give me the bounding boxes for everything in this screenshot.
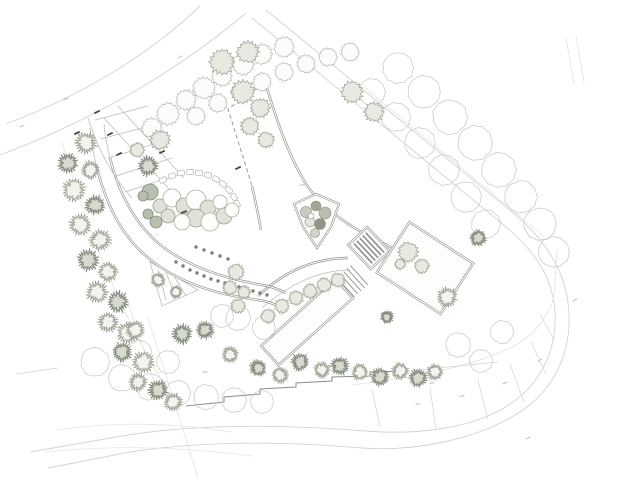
hedge-dot — [209, 277, 212, 280]
tree-symbol-spiky — [352, 363, 368, 380]
tree-symbol-spiky — [97, 312, 119, 332]
tree-symbol-fluffy — [274, 37, 295, 58]
tree-symbol-fluffyT — [209, 49, 235, 75]
tree-symbol-canopy — [408, 75, 440, 108]
tree-symbol-spiky — [314, 361, 331, 378]
west-tick-line — [16, 368, 58, 374]
tree-symbol-spiky — [164, 393, 183, 411]
hedge-dot — [226, 257, 229, 260]
tree-symbol-canopy — [539, 237, 570, 268]
tree-symbol-spikyDark — [147, 380, 168, 400]
perimeter-road-outer — [48, 10, 569, 468]
drive-outer-edge-gap — [96, 164, 278, 306]
annotation-tick-dark — [235, 166, 241, 170]
drive-outer-edge — [96, 164, 278, 306]
wedge-shrub — [308, 213, 314, 219]
tree-symbol-spiky — [86, 281, 109, 303]
annotation-tick-dark — [94, 110, 100, 114]
tree-symbol-canopy — [405, 127, 435, 158]
annotation-tick-dark — [107, 132, 113, 136]
hedge-dot — [188, 268, 191, 271]
tree-symbol-spikyDark — [330, 357, 349, 375]
annotation-tick-faint — [573, 298, 577, 302]
stepping-stone — [195, 170, 202, 176]
tree-symbol-fluffyT — [250, 99, 270, 119]
tree-symbol-canopy — [446, 333, 470, 358]
tree-symbol-canopy — [157, 351, 180, 374]
annotation-tick-faint — [19, 125, 24, 127]
tree-symbol-canopy — [458, 125, 492, 160]
tree-symbol-fluffy — [341, 43, 360, 62]
tree-symbol-spikyDark — [380, 311, 393, 323]
hedge-dot — [218, 254, 221, 257]
tree-symbol-canopy — [433, 100, 468, 135]
annotation-tick-faint — [526, 436, 531, 439]
tree-symbol-canopy — [491, 320, 514, 344]
annotation-tick-faint — [178, 55, 183, 58]
shrub-symbol — [161, 209, 175, 223]
site-plan-sheet — [0, 0, 640, 480]
shrub-symbol — [225, 203, 239, 217]
tree-symbol-canopy — [470, 350, 493, 373]
tree-symbol-fluffyT — [231, 299, 247, 314]
tree-symbol-canopy — [482, 152, 517, 187]
shrub-symbol — [143, 209, 153, 219]
wedge-planter — [294, 194, 339, 248]
stepping-stone — [212, 175, 220, 182]
tree-symbol-spikyDark — [409, 369, 427, 388]
annotation-tick-faint — [429, 382, 434, 383]
tree-symbol-fluffy — [275, 63, 294, 82]
hedge-dot — [251, 289, 254, 292]
tree-symbol-fluffyT — [331, 273, 346, 287]
annotation-tick-faint — [415, 403, 420, 405]
garden-shrubs — [138, 184, 239, 231]
hedge-dot — [258, 291, 261, 294]
annotation-tick-faint — [459, 395, 464, 397]
tree-symbol-spikyDark — [470, 229, 487, 246]
tree-symbol-fluffyT — [275, 299, 290, 314]
linework-layer — [0, 6, 584, 478]
hedge-dot — [202, 274, 205, 277]
tree-symbol-fluffy — [176, 90, 197, 111]
tree-symbol-spikyDark — [291, 353, 309, 371]
hedge-dot — [265, 293, 268, 296]
tree-symbol-spikyDark — [77, 249, 99, 272]
site-plan-drawing — [0, 0, 640, 480]
hedge-dot — [181, 264, 184, 267]
tree-symbol-fluffy — [253, 72, 271, 91]
plaza-left-edge-gap — [252, 186, 261, 230]
tree-symbol-fluffyT — [231, 79, 255, 104]
hedge-dot — [194, 245, 197, 248]
tree-symbol-spiky — [63, 178, 86, 202]
stepping-stone — [186, 169, 193, 174]
tree-symbol-spikyDark — [196, 321, 215, 340]
wedge-shrub — [311, 201, 321, 211]
tree-symbol-spiky — [222, 346, 238, 362]
tree-symbol-spikyDark — [58, 153, 78, 173]
tree-symbol-canopy — [505, 181, 538, 213]
tree-symbol-fluffyT — [260, 309, 275, 324]
annotation-tick-faint — [202, 371, 207, 372]
tree-symbol-canopy — [194, 384, 219, 409]
terrain-contour-2 — [46, 448, 252, 456]
tree-symbol-canopy — [81, 347, 110, 376]
tree-symbol-fluffyT — [240, 117, 258, 135]
tree-symbol-fluffyT — [130, 142, 145, 157]
tree-symbol-fluffyT — [228, 264, 245, 281]
tree-symbol-spikyDark — [249, 360, 265, 377]
stepping-stone — [219, 180, 228, 188]
stepping-stone — [204, 172, 212, 179]
drive-upper-stub — [90, 124, 110, 164]
tree-symbol-spiky — [98, 262, 119, 282]
tree-symbol-spiky — [88, 229, 111, 251]
hedge-dot — [202, 248, 205, 251]
shrub-symbol — [213, 195, 227, 209]
tree-symbol-spikyDark — [113, 342, 132, 362]
stepping-stone — [168, 173, 176, 180]
tree-symbol-spikyDark — [108, 290, 128, 313]
tree-symbol-fluffy — [157, 102, 180, 126]
tree-symbol-spiky — [69, 214, 91, 236]
tree-symbol-fluffy — [319, 48, 338, 67]
trees-fluffyT — [130, 40, 430, 324]
wedge-shrub — [315, 219, 326, 230]
stepping-stone — [177, 170, 185, 176]
tree-symbol-fluffyT — [289, 290, 304, 305]
shrub-symbol — [138, 191, 148, 201]
ne-drive-stub — [566, 36, 584, 84]
tree-symbol-spiky — [81, 160, 99, 180]
tree-symbol-fluffyT — [258, 132, 275, 149]
annotation-tick-faint — [502, 382, 507, 385]
annotation-tick-faint — [299, 184, 304, 186]
wedge-shrub — [319, 207, 331, 219]
tree-symbol-canopy — [211, 304, 234, 328]
hedge-dots — [174, 245, 268, 296]
tree-symbol-fluffyT — [341, 81, 364, 103]
hedge-dot — [210, 251, 213, 254]
shrub-symbol — [174, 214, 190, 230]
tree-symbol-spiky — [427, 363, 443, 380]
tree-symbol-spiky — [272, 367, 289, 384]
tree-symbol-spikyDark — [371, 368, 389, 387]
hedge-dot — [216, 279, 219, 282]
stepping-stone — [225, 186, 234, 194]
tree-symbol-spikyDark — [85, 195, 105, 215]
wedge-shrub — [311, 229, 320, 238]
tree-symbol-canopy — [451, 182, 481, 212]
tree-symbol-canopy — [429, 155, 459, 186]
stepping-stone — [159, 176, 167, 183]
terrain-contour-1 — [58, 424, 232, 432]
hedge-dot — [174, 260, 177, 263]
tree-symbol-canopy — [222, 388, 247, 412]
tree-symbol-fluffyT — [317, 278, 331, 293]
tree-symbol-fluffyT — [238, 285, 251, 298]
tree-symbol-spikyDark — [171, 324, 192, 345]
hedge-dot — [195, 271, 198, 274]
tree-symbol-canopy — [383, 53, 414, 84]
